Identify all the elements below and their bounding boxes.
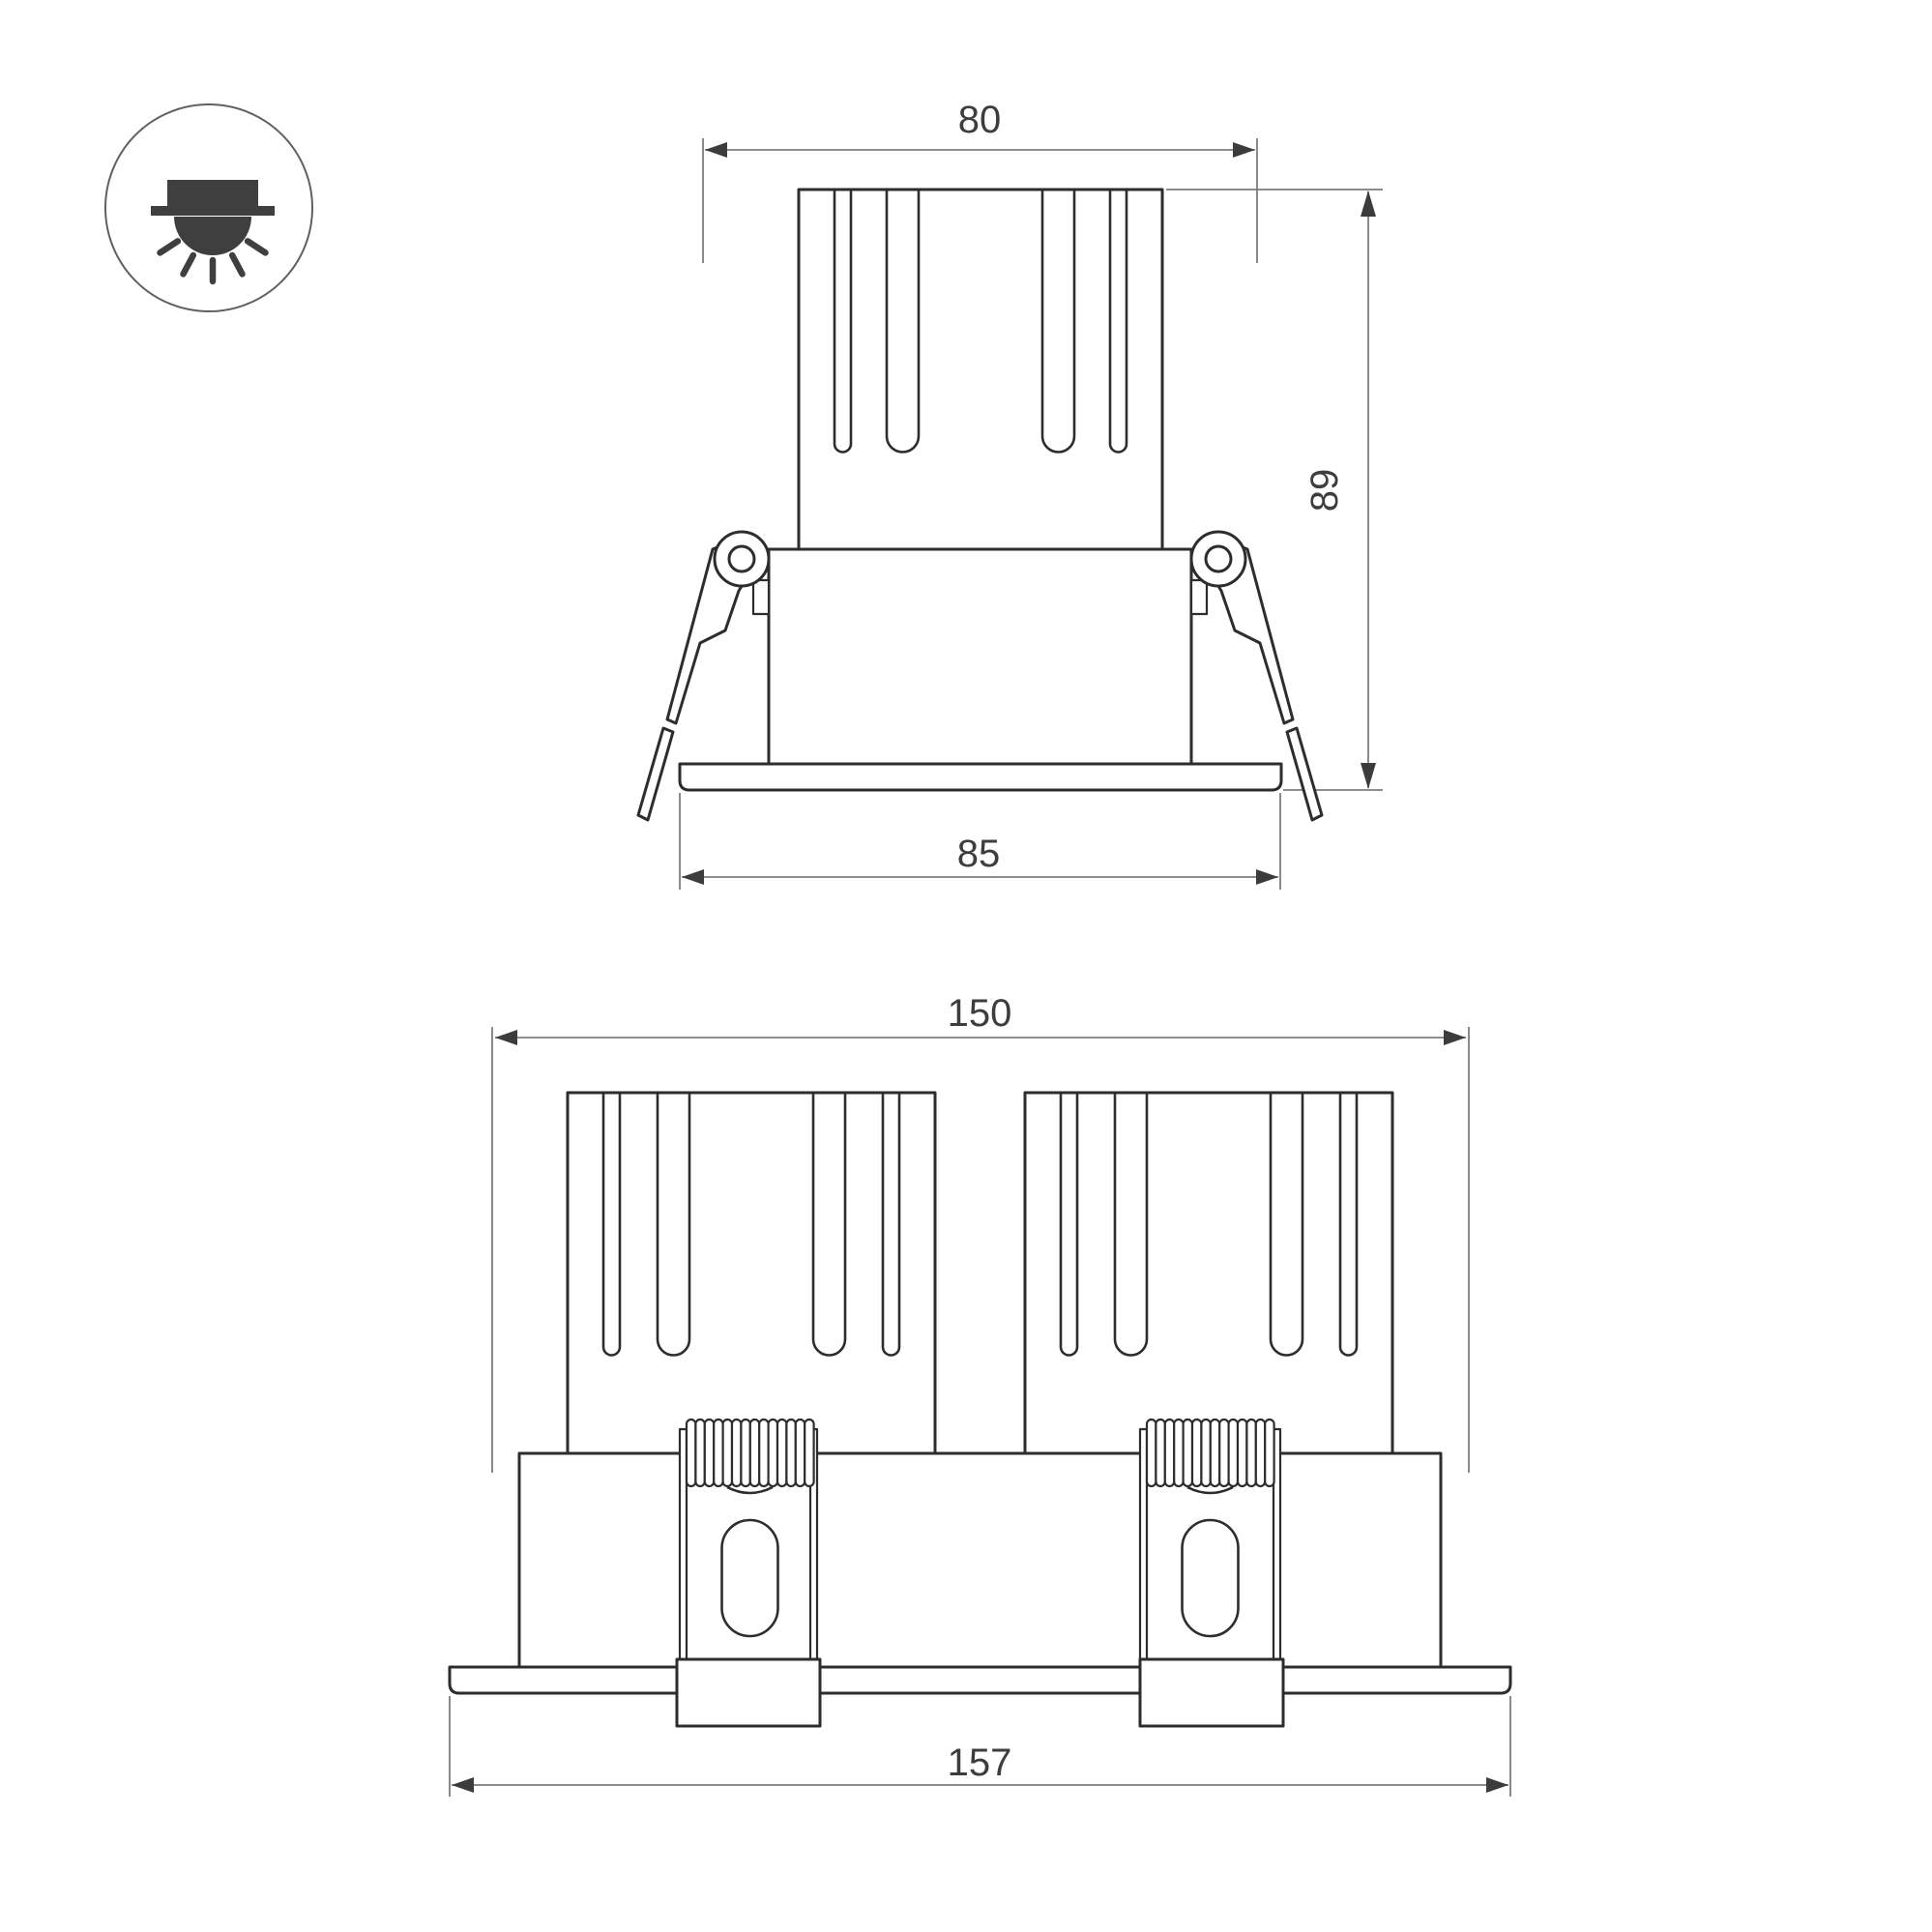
knurl-ridge [741,1420,749,1486]
knurl-ridge [1174,1420,1183,1486]
arrowhead-up-icon [1361,190,1376,217]
knurl-ridge [1156,1420,1164,1486]
downlight-recessed-icon [105,104,312,311]
knurl-ridge [732,1420,741,1486]
knurl-ridge [796,1420,805,1486]
dim-flange-width: 157 [450,1696,1510,1797]
view-front-double: 150 157 [450,992,1510,1797]
arrowhead-right-icon [1256,869,1278,885]
knurl-ridge [1211,1420,1219,1486]
view-front-single: 80 89 85 [638,99,1383,890]
clip-mount-tab [1191,580,1207,614]
arrowhead-right-icon [1233,142,1255,158]
knurl-ridge [1192,1420,1201,1486]
knurl-ridge [777,1420,786,1486]
knurl-ridge [1201,1420,1210,1486]
arrowhead-right-icon [1444,1030,1466,1045]
knurl-ridge [759,1420,768,1486]
knurl-ridge [1246,1420,1255,1486]
trim-flange [450,1667,1510,1693]
bracket-foot [1140,1659,1283,1726]
knurl-ridge [714,1420,722,1486]
dim-flange-width: 85 [680,793,1280,890]
heatsink-body [1025,1093,1392,1453]
icon-ceiling-flange [151,206,275,216]
knurl-ridge [1265,1420,1273,1486]
clip-pivot-hole [1206,546,1231,571]
knurl-ridge [1147,1420,1156,1486]
heatsink-body [568,1093,935,1453]
arrowhead-left-icon [682,869,704,885]
clip-mount-tab [753,580,769,614]
dimension-label: 150 [948,992,1012,1035]
knurl-ridge [1165,1420,1174,1486]
knurl-ridge [1256,1420,1265,1486]
arrowhead-left-icon [495,1030,517,1045]
clip-pivot-hole [729,546,754,571]
arrowhead-left-icon [452,1777,474,1793]
dimension-label: 85 [957,833,1001,875]
trim-flange [680,764,1281,790]
driver-housing [519,1453,1441,1667]
knurl-ridge [769,1420,777,1486]
dimension-label: 89 [1303,469,1346,512]
knurl-ridge [705,1420,714,1486]
arrowhead-down-icon [1361,763,1376,789]
knurl-ridge [695,1420,704,1486]
dimension-label: 157 [948,1742,1012,1784]
spring-clip-foot [638,728,673,820]
drawing-sheet: 80 89 85 [0,0,1932,1932]
dim-height: 89 [1166,190,1383,790]
knurl-ridge [687,1420,695,1486]
arrowhead-right-icon [1486,1777,1508,1793]
dimension-label: 80 [958,99,1002,141]
technical-drawing-svg: 80 89 85 [0,0,1932,1932]
arrowhead-left-icon [705,142,727,158]
heatsink-body [799,190,1162,549]
spring-clip-foot [1287,728,1322,820]
knurl-ridge [1219,1420,1228,1486]
driver-housing [769,549,1191,764]
knurl-ridge [1238,1420,1246,1486]
knurl-ridge [723,1420,732,1486]
bracket-knurl [687,1420,814,1486]
knurl-ridge [805,1420,813,1486]
knurl-ridge [1229,1420,1238,1486]
knurl-ridge [786,1420,795,1486]
knurl-ridge [750,1420,759,1486]
knurl-ridge [1184,1420,1192,1486]
bracket-knurl [1147,1420,1274,1486]
icon-lamp-body [167,180,258,207]
bracket-foot [677,1659,820,1726]
